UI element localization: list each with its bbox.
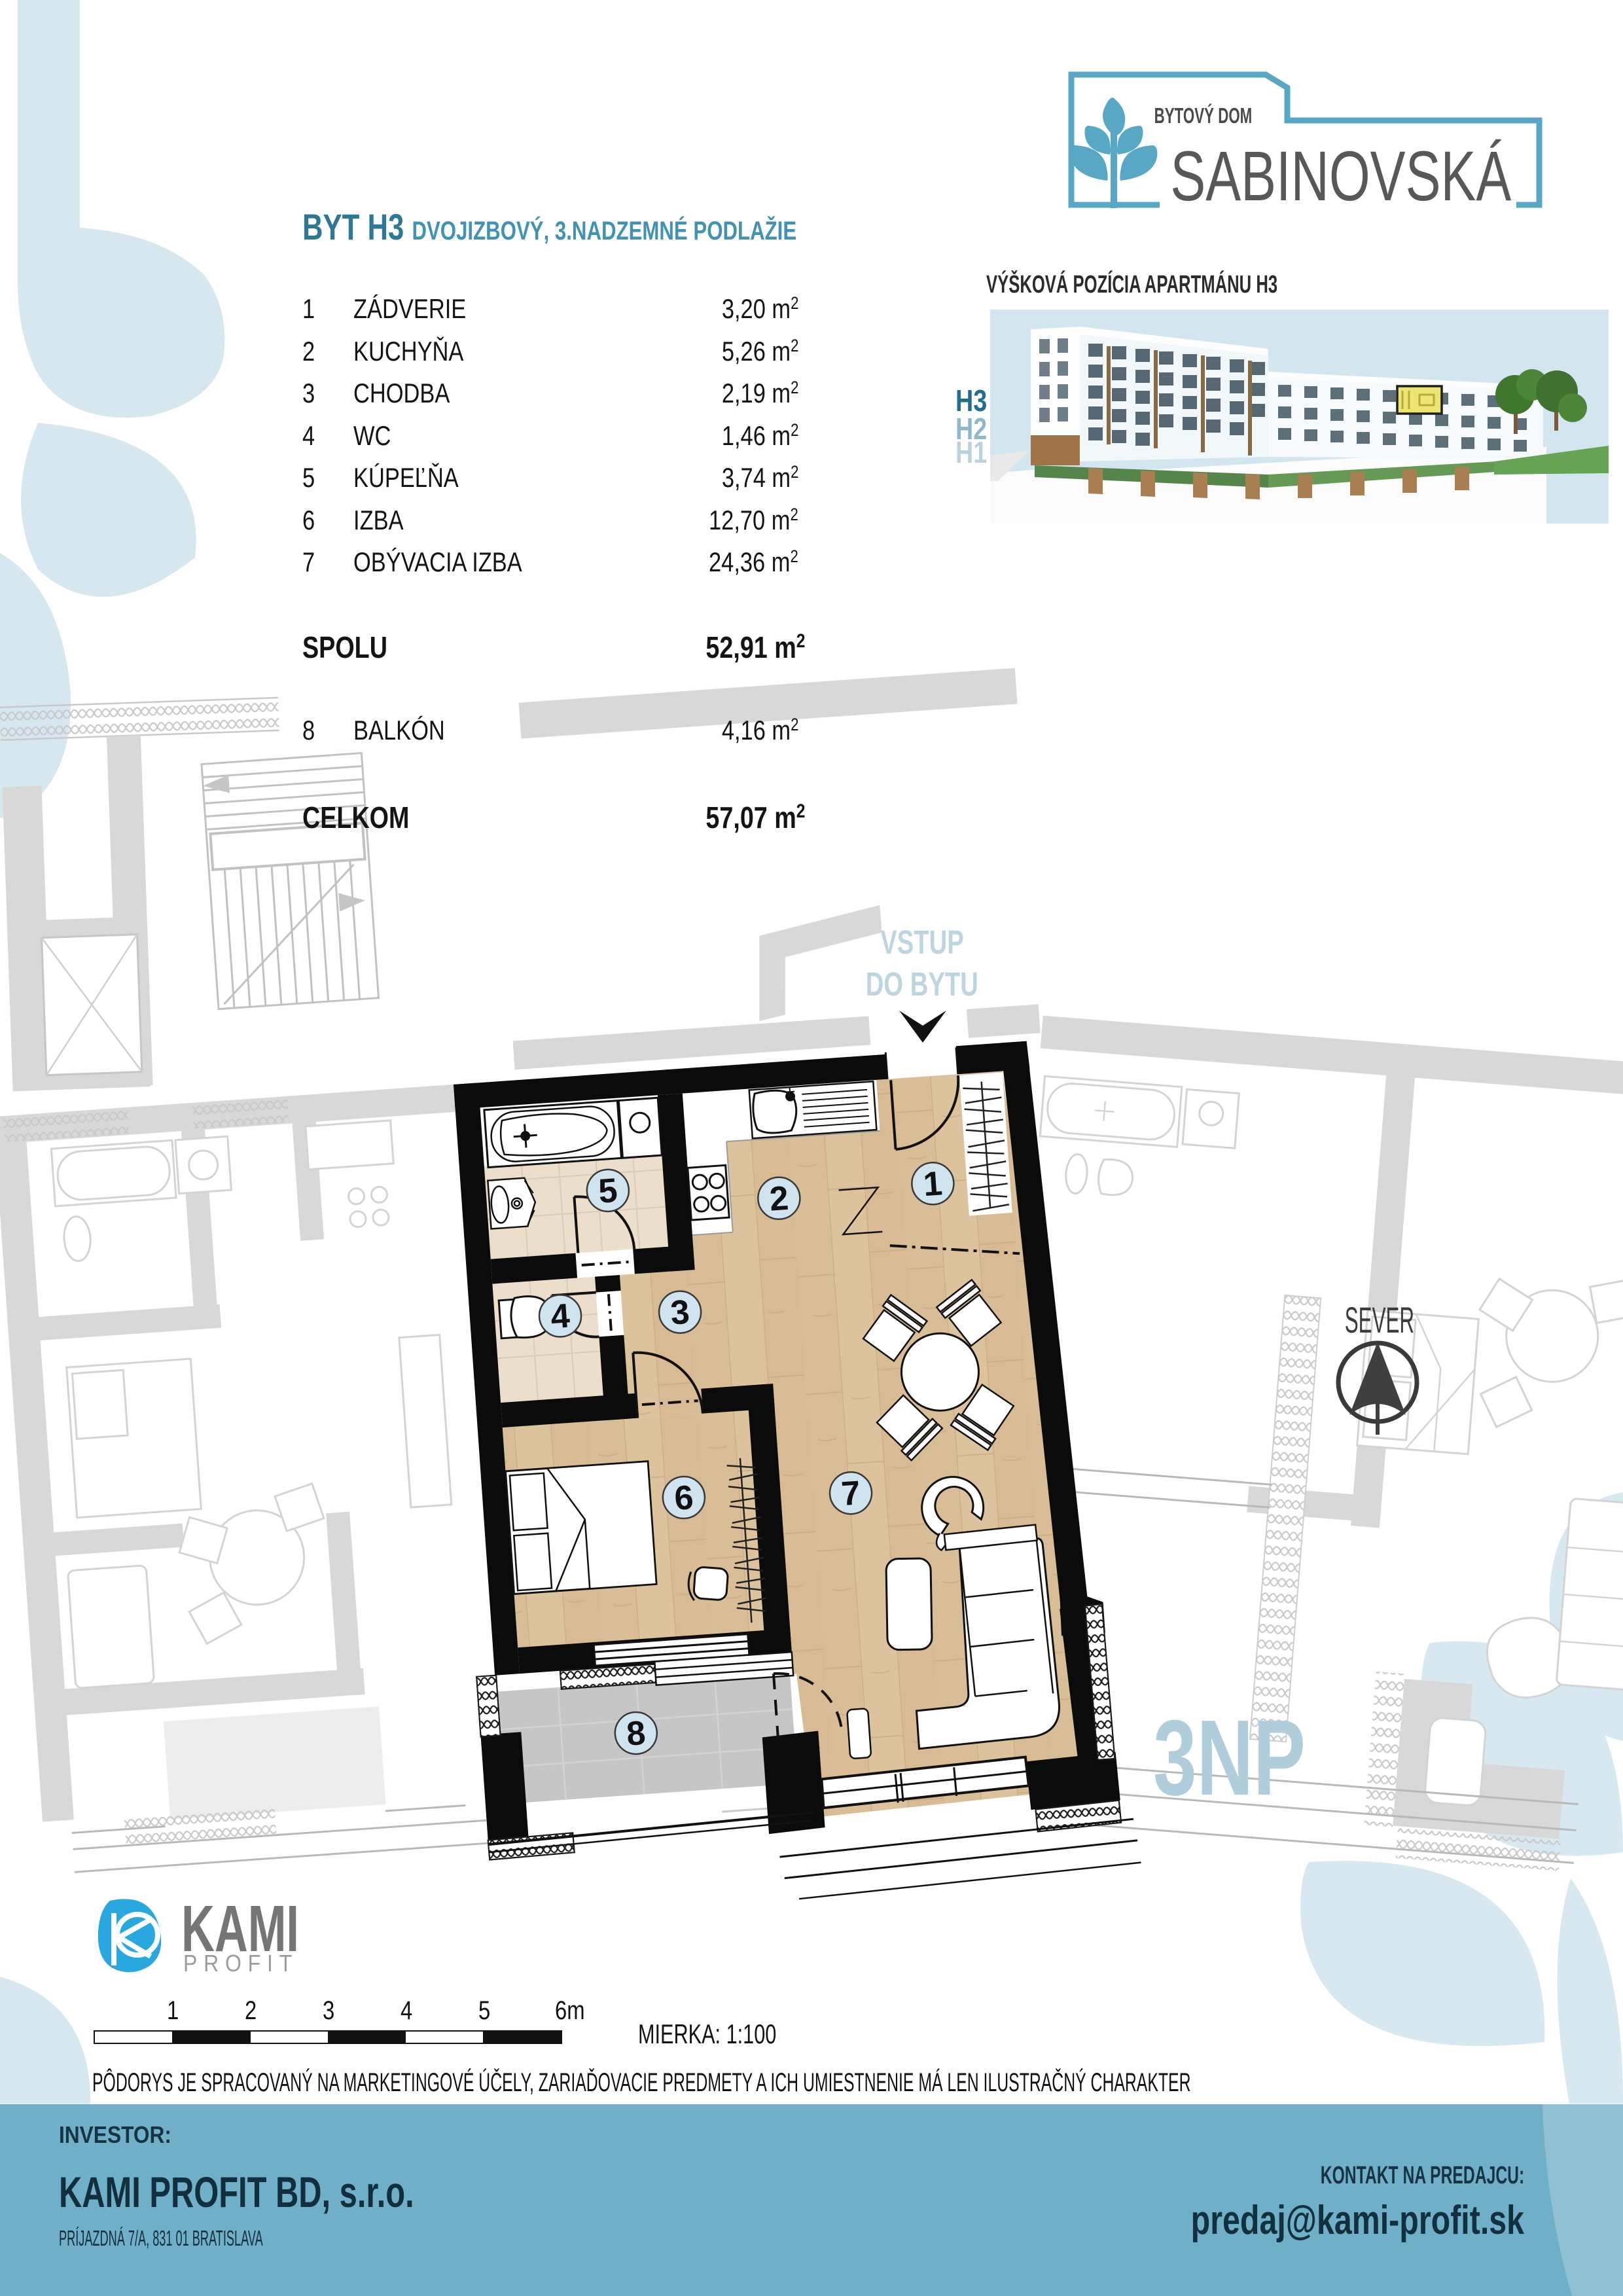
- svg-text:2: 2: [768, 1179, 790, 1219]
- svg-text:4: 4: [550, 1297, 571, 1336]
- svg-text:6: 6: [673, 1479, 694, 1518]
- svg-text:SABINOVSKÁ: SABINOVSKÁ: [1170, 136, 1511, 215]
- svg-text:5: 5: [597, 1172, 618, 1211]
- svg-text:BYTOVÝ DOM: BYTOVÝ DOM: [1154, 103, 1253, 128]
- svg-text:8: 8: [625, 1714, 647, 1753]
- svg-text:PROFIT: PROFIT: [183, 1950, 298, 1977]
- svg-text:1: 1: [922, 1164, 944, 1204]
- svg-text:7: 7: [840, 1474, 862, 1513]
- svg-text:3: 3: [669, 1293, 691, 1333]
